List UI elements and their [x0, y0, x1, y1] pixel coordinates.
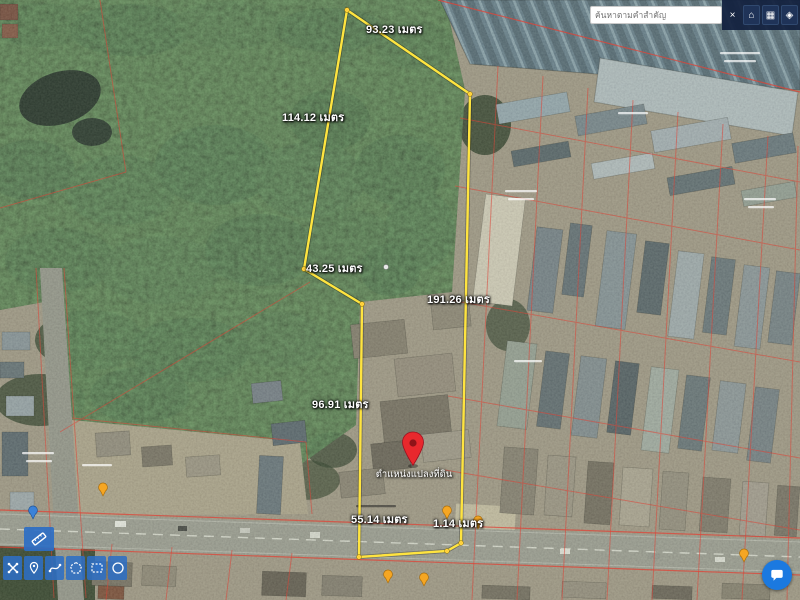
close-search-button[interactable]: ×: [724, 5, 741, 25]
polygon-icon: [69, 561, 83, 575]
parcel-table-button[interactable]: ▦: [762, 5, 779, 25]
drawing-toolbar: [3, 556, 127, 580]
small-point-marker[interactable]: [384, 265, 389, 270]
search-input[interactable]: [590, 6, 722, 24]
layers-button[interactable]: ◈: [781, 5, 798, 25]
satellite-map-canvas[interactable]: [0, 0, 800, 600]
pin-caption: ตำแหน่งแปลงที่ดิน: [364, 467, 464, 482]
top-right-toolbar: × ⌂ ▦ ◈: [722, 0, 800, 30]
search-bar: [590, 5, 722, 23]
crossed-tools-icon: [6, 561, 20, 575]
freehand-line-icon: [48, 561, 62, 575]
home-button[interactable]: ⌂: [743, 5, 760, 25]
ruler-icon: [30, 530, 48, 548]
measure-distance-button[interactable]: [24, 527, 54, 551]
clear-tools-button[interactable]: [3, 556, 22, 580]
layers-icon: ◈: [786, 10, 794, 21]
rectangle-icon: [90, 561, 104, 575]
draw-line-button[interactable]: [45, 556, 64, 580]
home-icon: ⌂: [748, 10, 754, 21]
draw-rectangle-button[interactable]: [87, 556, 106, 580]
circle-icon: [111, 561, 125, 575]
chat-fab-button[interactable]: [762, 560, 792, 590]
draw-circle-button[interactable]: [108, 556, 127, 580]
draw-polygon-button[interactable]: [66, 556, 85, 580]
chat-bubble-icon: [769, 567, 785, 583]
marker-pin-icon: [27, 561, 41, 575]
grid-icon: ▦: [766, 10, 775, 21]
map-app-window: 93.23 เมตร 114.12 เมตร 43.25 เมตร 191.26…: [0, 0, 800, 600]
close-icon: ×: [730, 10, 736, 21]
drop-marker-button[interactable]: [24, 556, 43, 580]
